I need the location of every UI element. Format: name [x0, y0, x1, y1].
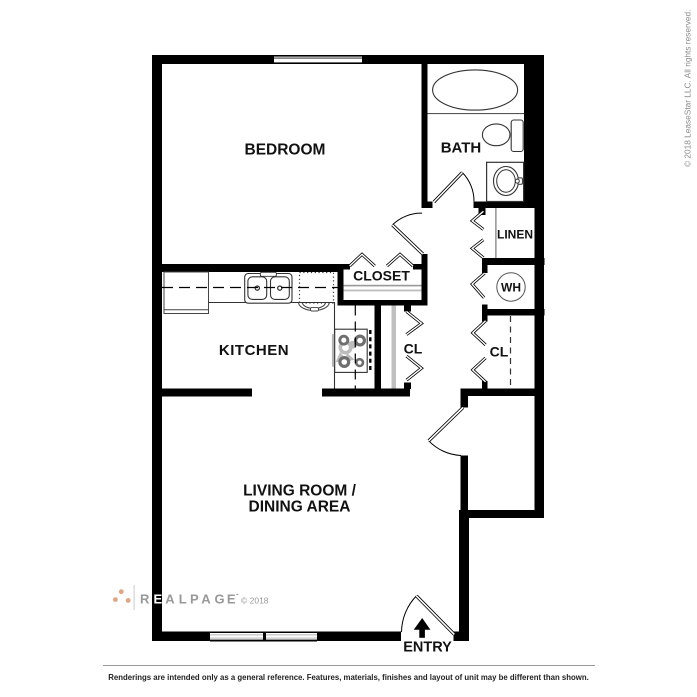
svg-text:E: E: [227, 592, 236, 607]
svg-text:G: G: [215, 592, 225, 607]
svg-text:Renderings are intended only a: Renderings are intended only as a genera…: [108, 673, 589, 682]
svg-text:WH: WH: [501, 281, 521, 295]
svg-text:CL: CL: [404, 341, 423, 357]
svg-text:© 2018: © 2018: [241, 595, 269, 605]
svg-text:A: A: [201, 592, 211, 607]
svg-text:ENTRY: ENTRY: [403, 640, 452, 656]
svg-text:DINING AREA: DINING AREA: [249, 499, 351, 516]
svg-text:CL: CL: [490, 344, 509, 360]
svg-text:L: L: [179, 592, 187, 607]
svg-text:LINEN: LINEN: [497, 228, 533, 242]
svg-text:A: A: [165, 592, 175, 607]
svg-text:© 2018 LeaseStar LLC. All righ: © 2018 LeaseStar LLC. All rights reserve…: [683, 10, 693, 167]
svg-text:CLOSET: CLOSET: [353, 268, 410, 284]
svg-text:LIVING ROOM /: LIVING ROOM /: [243, 483, 357, 500]
svg-text:E: E: [154, 592, 163, 607]
svg-text:R: R: [140, 592, 150, 607]
svg-text:P: P: [190, 592, 199, 607]
svg-text:KITCHEN: KITCHEN: [219, 342, 289, 359]
svg-text:BATH: BATH: [441, 140, 482, 157]
svg-text:BEDROOM: BEDROOM: [245, 142, 326, 159]
